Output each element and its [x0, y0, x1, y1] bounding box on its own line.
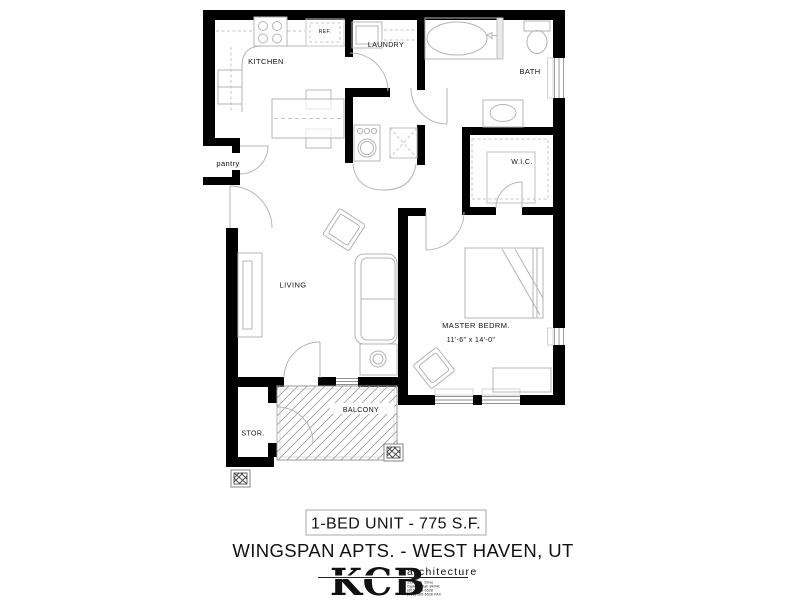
entry-door — [230, 186, 272, 228]
wall-bath-left-lower — [417, 125, 425, 165]
wall-storage-stub-top — [268, 385, 277, 403]
wall-storage-bottom — [226, 457, 274, 467]
closet-bifold-doors — [353, 164, 416, 190]
toilet — [524, 21, 550, 54]
accent-chair — [323, 208, 366, 251]
balcony-label: BALCONY — [343, 407, 379, 414]
column-marker-balcony — [384, 444, 403, 461]
living-window-bottom — [336, 377, 358, 386]
bath-vanity — [483, 100, 523, 127]
wall-pantry-stub-bottom — [232, 170, 240, 177]
pantry-door — [240, 146, 268, 174]
bath-window — [548, 58, 566, 98]
logo-tagline: architecture — [407, 566, 477, 578]
bedroom-window-right — [548, 328, 566, 345]
tub-faucet — [487, 33, 498, 39]
wall-living-bottom-mid — [318, 377, 336, 386]
bathtub — [425, 18, 498, 59]
bedroom-window-bottom-2 — [482, 389, 520, 405]
wall-pantry-stub-top — [232, 146, 240, 153]
water-heater — [390, 128, 417, 158]
kitchen-fixtures — [216, 17, 345, 148]
fridge-label: REF. — [319, 29, 331, 35]
wall-bedroom-top — [398, 208, 426, 216]
logo-address: 3533 SW. Drive Ogden, Utah 84041 (801) 5… — [407, 581, 442, 597]
bath-label: BATH — [519, 67, 540, 76]
bath-door — [411, 88, 447, 124]
bedroom-chair — [413, 347, 455, 389]
wic-shelving-dashed — [472, 139, 548, 199]
floorplan-page: KITCHEN LAUNDRY BATH pantry W.I.C. LIVIN… — [0, 0, 800, 600]
wall-bedroom-bottom — [398, 395, 565, 405]
wall-closet-left — [345, 97, 353, 163]
base-cabinet — [218, 87, 242, 104]
title-block: 1-BED UNIT - 775 S.F. WINGSPAN APTS. - W… — [232, 510, 573, 561]
master-bedroom-dims: 11'-6" x 14'-0" — [447, 337, 496, 344]
bedroom-door — [426, 212, 464, 250]
balcony-deck — [277, 386, 397, 460]
utility-sink — [354, 125, 380, 161]
end-table-lamp — [360, 344, 397, 375]
wall-bedroom-left — [398, 210, 408, 405]
bedroom-furniture — [413, 248, 551, 392]
balcony-door — [284, 342, 320, 378]
floorplan-drawing: KITCHEN LAUNDRY BATH pantry W.I.C. LIVIN… — [0, 0, 800, 600]
wall-hall-top — [345, 88, 390, 97]
wall-living-bottom-left — [226, 377, 284, 387]
stove — [254, 17, 287, 46]
wall-bath-bottom — [462, 127, 557, 135]
wic-fixtures — [472, 139, 548, 203]
living-label: LIVING — [280, 281, 307, 290]
wall-wic-bottom-left — [462, 207, 496, 215]
wall-right-lower — [553, 345, 565, 405]
laundry-shelf-dashed — [384, 30, 417, 40]
logo-address-line: (801) 565-6528 FAX — [407, 593, 442, 597]
wall-wic-left — [462, 127, 470, 213]
master-bedroom-label: MASTER BEDRM. — [442, 321, 510, 330]
living-furniture — [238, 208, 397, 375]
kitchen-label: KITCHEN — [248, 57, 284, 66]
bed — [465, 248, 543, 318]
wall-left-lower — [226, 228, 238, 467]
pantry-label: pantry — [216, 159, 239, 168]
storage-label: STOR. — [241, 431, 264, 438]
laundry-label: LAUNDRY — [368, 42, 404, 49]
wall-right-upper — [553, 10, 565, 58]
balcony — [277, 386, 397, 460]
wall-bath-left-upper — [417, 10, 425, 90]
wall-storage-stub-bottom — [268, 443, 277, 457]
dining-table — [272, 90, 344, 148]
dresser — [493, 368, 551, 392]
unit-label: 1-BED UNIT - 775 S.F. — [311, 516, 481, 533]
sofa — [355, 254, 397, 344]
wall-pantry-top — [203, 138, 240, 146]
wall-wic-bottom-right — [522, 207, 557, 215]
wic-door — [496, 182, 522, 208]
base-cabinet — [218, 70, 242, 87]
laundry-door — [350, 53, 388, 91]
wall-left-upper — [203, 10, 215, 146]
wall-pantry-bottom — [203, 177, 240, 185]
windows — [336, 58, 565, 405]
bedroom-window-bottom-1 — [435, 389, 473, 405]
column-marker-entry — [231, 470, 250, 487]
wic-label: W.I.C. — [511, 159, 532, 166]
media-console — [238, 253, 262, 337]
firm-logo: KCB architecture 3533 SW. Drive Ogden, U… — [314, 560, 477, 600]
project-label: WINGSPAN APTS. - WEST HAVEN, UT — [232, 540, 573, 561]
tub-partition — [497, 18, 503, 59]
